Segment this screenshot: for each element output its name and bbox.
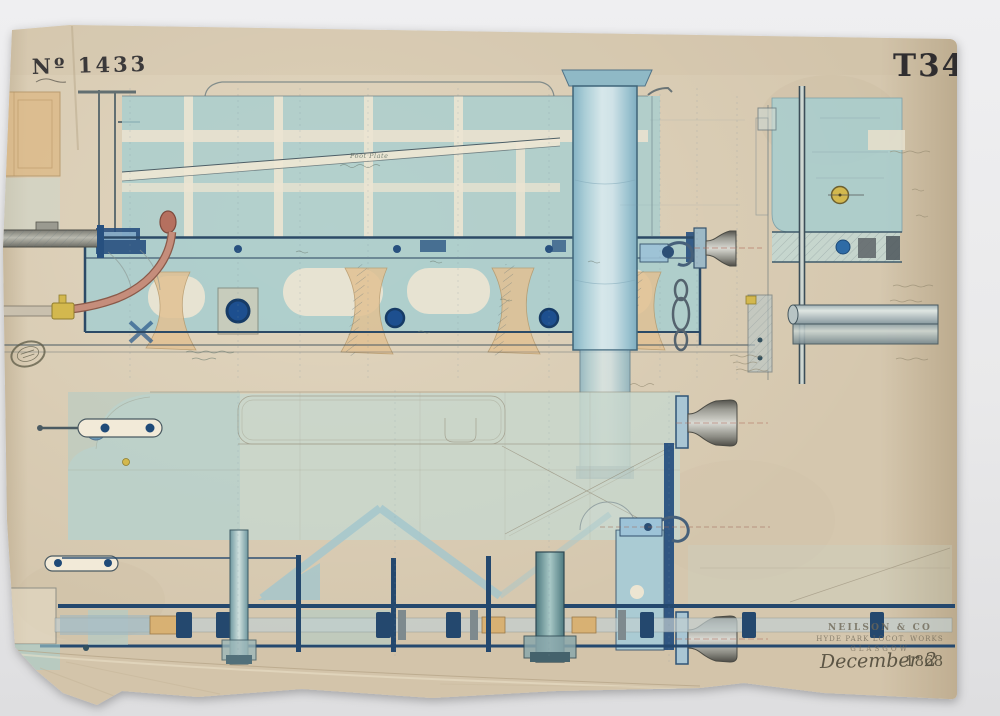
foot-plate-annotation: Foot Plate — [349, 152, 388, 160]
axle-bearing — [386, 309, 404, 327]
copper-dome — [160, 211, 176, 233]
photo-background: Nº 1433 T349 NEILSON & CO HYDE PARK LOCO… — [0, 0, 1000, 716]
section-boiler-cylinders — [788, 305, 938, 344]
cab-panel — [0, 92, 60, 232]
drawing-number-stamp: Nº 1433 — [31, 51, 148, 79]
date-year: 1868 — [905, 652, 943, 670]
drawing-scan: Nº 1433 T349 NEILSON & CO HYDE PARK LOCO… — [0, 0, 1000, 716]
section-left-bracket — [746, 295, 772, 372]
maker-company: NEILSON & CO — [828, 623, 932, 633]
brass-valve — [52, 303, 74, 319]
wood-segment — [572, 617, 596, 633]
wood-segment — [150, 616, 178, 634]
maker-works: HYDE PARK LOCOT. WORKS — [816, 635, 944, 643]
date-stamp: December 2 1868 — [819, 649, 943, 673]
wood-segment — [482, 617, 505, 633]
section-bearing — [836, 240, 850, 254]
catalog-stamp: T349 — [893, 48, 989, 84]
